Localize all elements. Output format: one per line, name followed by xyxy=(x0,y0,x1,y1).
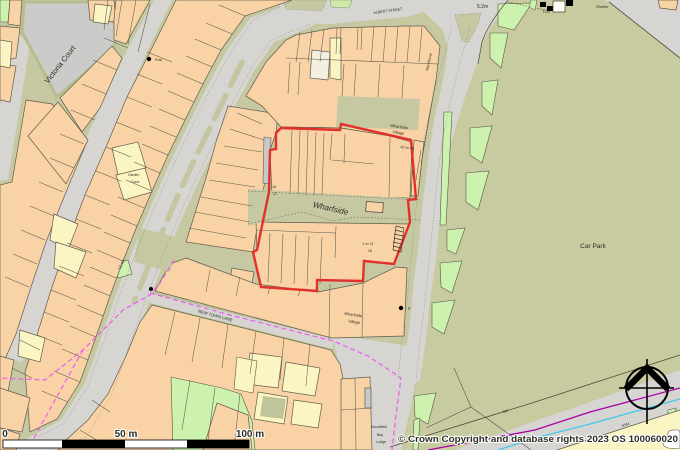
svg-text:16: 16 xyxy=(272,185,276,189)
svg-text:1 to 11: 1 to 11 xyxy=(362,242,373,246)
svg-text:Lodge: Lodge xyxy=(376,440,386,444)
svg-text:P: P xyxy=(408,306,411,311)
svg-text:Shelter: Shelter xyxy=(596,4,609,9)
svg-text:Mountfield: Mountfield xyxy=(371,425,387,429)
svg-text:Bay: Bay xyxy=(377,433,383,437)
svg-text:Car Park: Car Park xyxy=(580,243,606,250)
svg-text:15: 15 xyxy=(368,249,372,253)
svg-text:Garden: Garden xyxy=(128,173,139,177)
svg-text:Post: Post xyxy=(155,58,162,62)
svg-text:0: 0 xyxy=(2,429,8,440)
svg-text:50 m: 50 m xyxy=(115,429,138,440)
svg-text:Court: Court xyxy=(131,180,139,184)
svg-text:© Crown Copyright and database: © Crown Copyright and database rights 20… xyxy=(398,434,678,444)
svg-text:100 m: 100 m xyxy=(236,429,264,440)
svg-text:17: 17 xyxy=(273,192,277,196)
svg-text:5.2m: 5.2m xyxy=(477,4,488,10)
